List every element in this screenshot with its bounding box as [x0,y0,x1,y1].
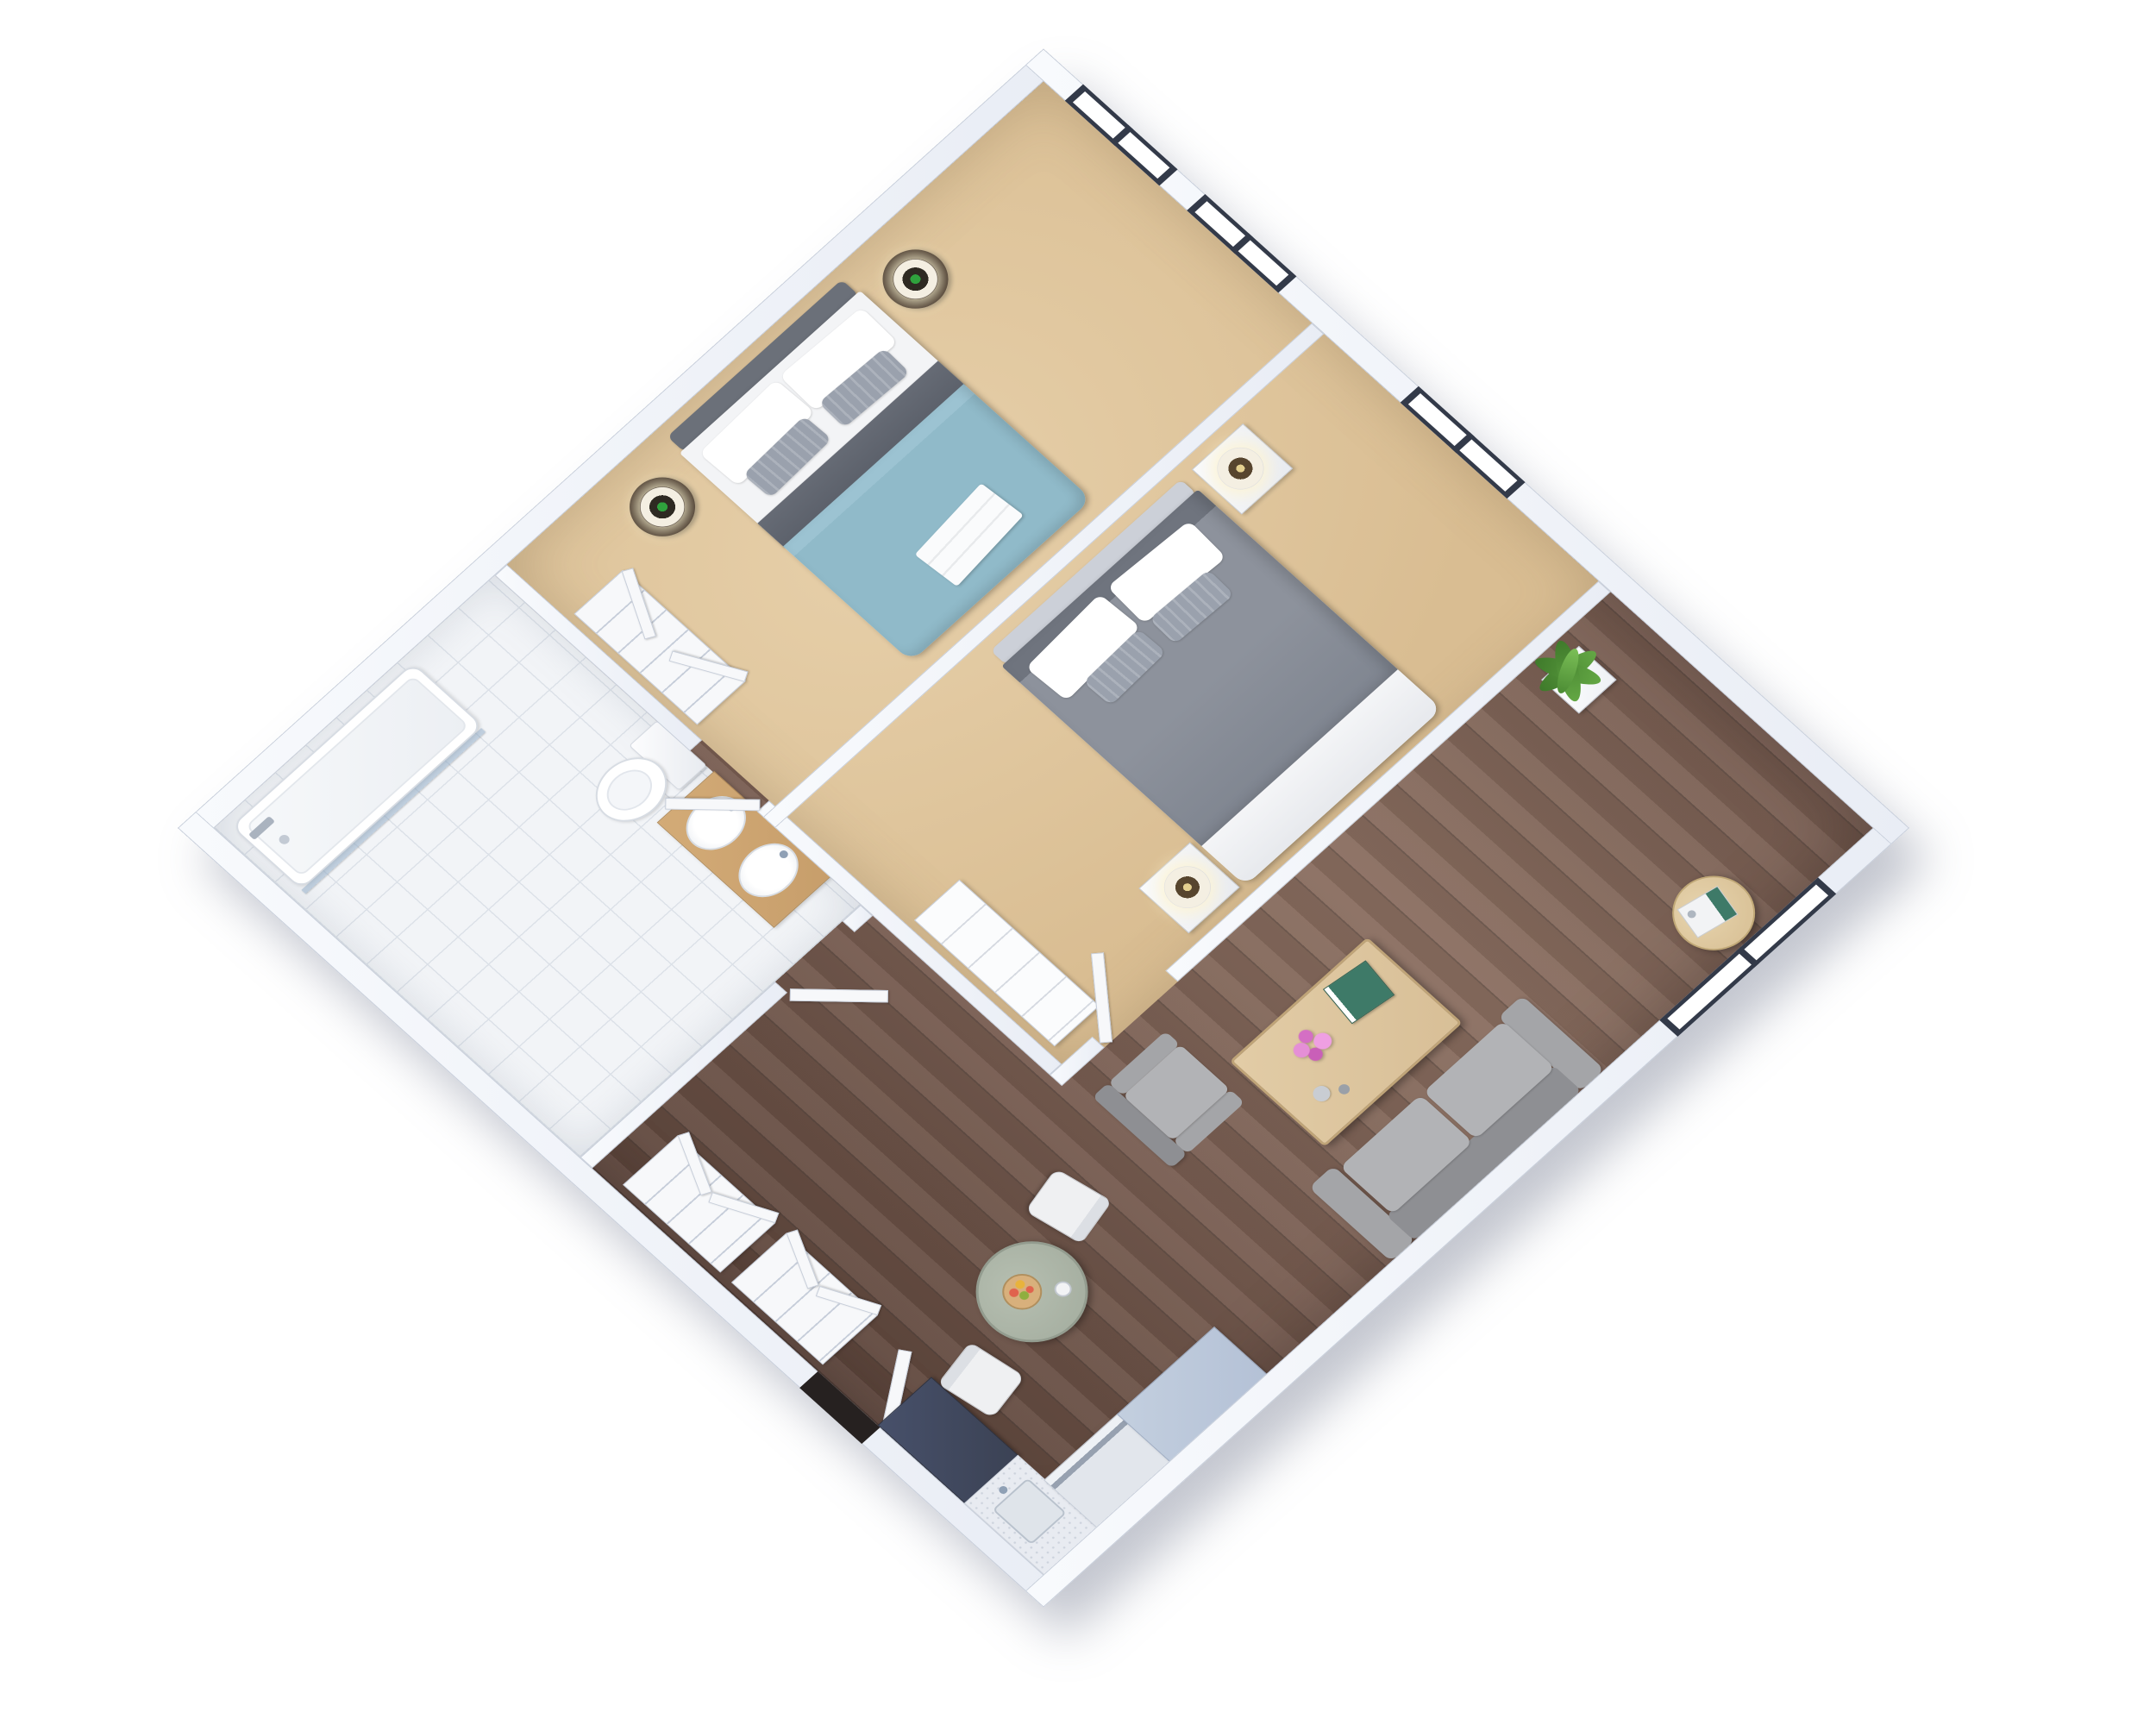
faucet-icon [997,1484,1009,1496]
book [1677,886,1739,938]
floor-plan-render [0,0,2156,1725]
faucet-icon [778,849,790,860]
toilet-seat [598,762,661,819]
plan-shadow-wrapper [0,0,2156,1725]
apartment-floor-plan [178,48,1909,1607]
bedroom1-door [665,798,760,811]
bathroom-door [790,988,888,1002]
